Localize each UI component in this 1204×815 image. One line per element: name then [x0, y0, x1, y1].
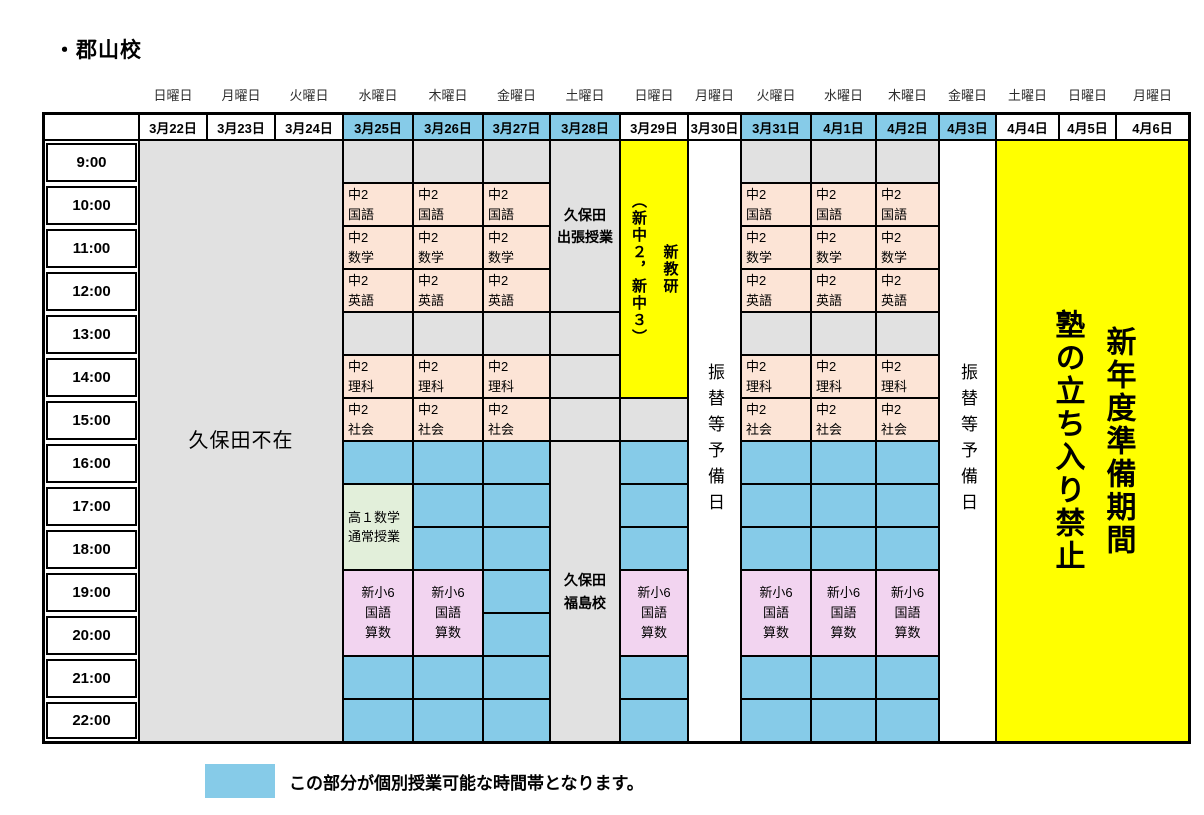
- class-block: 中2 数学: [344, 227, 412, 268]
- time-label: 19:00: [46, 573, 137, 612]
- class-block: 中2 英語: [484, 270, 549, 311]
- individual-available-slot: [621, 485, 687, 526]
- empty-slot: [551, 399, 619, 440]
- day-label: 土曜日: [997, 86, 1058, 106]
- empty-slot: [742, 141, 810, 182]
- empty-slot: [414, 141, 482, 182]
- time-label: 9:00: [46, 143, 137, 182]
- time-slot: 13:00: [45, 313, 138, 356]
- date-cell: 3月30日: [689, 115, 740, 139]
- time-slot: 15:00: [45, 399, 138, 442]
- empty-slot: [414, 313, 482, 354]
- empty-slot: [877, 313, 938, 354]
- individual-available-slot: [877, 528, 938, 569]
- empty-slot: [551, 356, 619, 397]
- day-of-week-row: 日曜日月曜日火曜日水曜日木曜日金曜日土曜日日曜日月曜日火曜日水曜日木曜日金曜日土…: [45, 86, 1188, 106]
- day-label: 金曜日: [940, 86, 995, 106]
- class-block: 新小6 国語 算数: [621, 571, 687, 655]
- empty-slot: [877, 141, 938, 182]
- date-cell: 4月1日: [812, 115, 875, 139]
- individual-available-slot: [414, 657, 482, 698]
- kubota-absent-block: 久保田不在: [140, 141, 342, 741]
- individual-available-slot: [812, 657, 875, 698]
- kubota-note-block: 久保田 福島校: [551, 442, 619, 741]
- class-block: 中2 国語: [742, 184, 810, 225]
- furikae-reserve-block: 振替等予備日: [940, 141, 995, 741]
- time-slot: 20:00: [45, 614, 138, 657]
- class-block: 中2 数学: [414, 227, 482, 268]
- individual-available-slot: [742, 485, 810, 526]
- date-cell: 4月6日: [1117, 115, 1188, 139]
- date-cell: 3月31日: [742, 115, 810, 139]
- time-slot: 18:00: [45, 528, 138, 571]
- class-block: 中2 国語: [812, 184, 875, 225]
- individual-available-slot: [484, 657, 549, 698]
- individual-available-slot: [484, 700, 549, 741]
- class-block: 中2 理科: [812, 356, 875, 397]
- day-label: 月曜日: [689, 86, 740, 106]
- individual-available-slot: [621, 442, 687, 483]
- time-label: 10:00: [46, 186, 137, 225]
- time-slot: 17:00: [45, 485, 138, 528]
- date-cell: 3月29日: [621, 115, 687, 139]
- individual-available-slot: [484, 528, 549, 569]
- individual-available-slot: [742, 528, 810, 569]
- class-block: 中2 数学: [812, 227, 875, 268]
- class-block: 中2 社会: [414, 399, 482, 440]
- class-block: 中2 国語: [877, 184, 938, 225]
- day-label: 日曜日: [1060, 86, 1115, 106]
- time-label: 22:00: [46, 702, 137, 739]
- individual-available-slot: [742, 700, 810, 741]
- individual-available-slot: [484, 614, 549, 655]
- time-slot: 16:00: [45, 442, 138, 485]
- time-label: 15:00: [46, 401, 137, 440]
- page-title: ・郡山校: [54, 34, 142, 64]
- individual-available-slot: [812, 700, 875, 741]
- class-block: 中2 英語: [812, 270, 875, 311]
- date-cell: 4月3日: [940, 115, 995, 139]
- class-block: 中2 社会: [484, 399, 549, 440]
- day-label: 金曜日: [484, 86, 549, 106]
- time-slot: 12:00: [45, 270, 138, 313]
- class-block: 高１数学 通常授業: [344, 485, 412, 569]
- individual-available-slot: [812, 442, 875, 483]
- class-block: 中2 数学: [484, 227, 549, 268]
- class-block: 中2 社会: [877, 399, 938, 440]
- individual-available-slot: [742, 442, 810, 483]
- date-cell: 3月22日: [140, 115, 206, 139]
- legend-color-swatch: [205, 764, 275, 798]
- individual-available-slot: [344, 657, 412, 698]
- class-block: 新小6 国語 算数: [414, 571, 482, 655]
- day-label: 火曜日: [742, 86, 810, 106]
- day-label: 木曜日: [877, 86, 938, 106]
- individual-available-slot: [414, 485, 482, 526]
- individual-available-slot: [344, 442, 412, 483]
- individual-available-slot: [484, 485, 549, 526]
- empty-slot: [344, 313, 412, 354]
- schedule-table: 3月22日3月23日3月24日3月25日3月26日3月27日3月28日3月29日…: [42, 112, 1191, 744]
- date-cell: 3月26日: [414, 115, 482, 139]
- legend-text: この部分が個別授業可能な時間帯となります。: [289, 769, 644, 794]
- time-label: 21:00: [46, 659, 137, 698]
- class-block: 中2 理科: [344, 356, 412, 397]
- individual-available-slot: [742, 657, 810, 698]
- class-block: 中2 理科: [414, 356, 482, 397]
- date-cell: 3月28日: [551, 115, 619, 139]
- date-cell: 3月24日: [276, 115, 342, 139]
- date-cell: 4月4日: [997, 115, 1058, 139]
- time-slot: 9:00: [45, 141, 138, 184]
- individual-available-slot: [812, 485, 875, 526]
- empty-slot: [344, 141, 412, 182]
- time-column: 9:0010:0011:0012:0013:0014:0015:0016:001…: [45, 141, 138, 741]
- date-cell: 4月5日: [1060, 115, 1115, 139]
- individual-available-slot: [877, 485, 938, 526]
- date-cell: 3月25日: [344, 115, 412, 139]
- individual-available-slot: [877, 700, 938, 741]
- time-label: 12:00: [46, 272, 137, 311]
- individual-available-slot: [621, 657, 687, 698]
- day-label: 月曜日: [208, 86, 274, 106]
- schedule-page: { "title": "・郡山校", "legend": { "text": "…: [0, 0, 1204, 815]
- class-block: 中2 理科: [742, 356, 810, 397]
- shinkyoken-exam-block: 新教研 （新中２，新中３）: [621, 141, 687, 397]
- time-slot: 19:00: [45, 571, 138, 614]
- individual-available-slot: [621, 528, 687, 569]
- day-label: 日曜日: [621, 86, 687, 106]
- individual-available-slot: [414, 442, 482, 483]
- individual-available-slot: [877, 442, 938, 483]
- empty-slot: [812, 313, 875, 354]
- day-label: 日曜日: [140, 86, 206, 106]
- class-block: 中2 英語: [414, 270, 482, 311]
- time-label: 20:00: [46, 616, 137, 655]
- day-row-spacer: [45, 86, 138, 106]
- individual-available-slot: [344, 700, 412, 741]
- individual-available-slot: [621, 700, 687, 741]
- class-block: 中2 英語: [877, 270, 938, 311]
- class-block: 中2 英語: [344, 270, 412, 311]
- time-label: 11:00: [46, 229, 137, 268]
- individual-available-slot: [877, 657, 938, 698]
- class-block: 中2 国語: [414, 184, 482, 225]
- individual-available-slot: [484, 442, 549, 483]
- day-label: 土曜日: [551, 86, 619, 106]
- class-block: 中2 国語: [344, 184, 412, 225]
- time-label: 13:00: [46, 315, 137, 354]
- class-block: 中2 理科: [484, 356, 549, 397]
- class-block: 中2 数学: [877, 227, 938, 268]
- time-label: 14:00: [46, 358, 137, 397]
- class-block: 中2 数学: [742, 227, 810, 268]
- individual-available-slot: [414, 700, 482, 741]
- class-block: 新小6 国語 算数: [742, 571, 810, 655]
- empty-slot: [621, 399, 687, 440]
- individual-available-slot: [812, 528, 875, 569]
- day-label: 火曜日: [276, 86, 342, 106]
- class-block: 中2 英語: [742, 270, 810, 311]
- time-slot: 22:00: [45, 700, 138, 741]
- day-label: 水曜日: [812, 86, 875, 106]
- class-block: 中2 社会: [742, 399, 810, 440]
- legend: この部分が個別授業可能な時間帯となります。: [205, 764, 644, 798]
- class-block: 新小6 国語 算数: [344, 571, 412, 655]
- time-slot: 11:00: [45, 227, 138, 270]
- individual-available-slot: [414, 528, 482, 569]
- time-label: 16:00: [46, 444, 137, 483]
- corner-cell: [45, 115, 138, 139]
- new-year-prep-block: 新年度準備期間 塾の立ち入り禁止: [997, 141, 1188, 741]
- day-label: 月曜日: [1117, 86, 1188, 106]
- empty-slot: [812, 141, 875, 182]
- time-slot: 21:00: [45, 657, 138, 700]
- class-block: 中2 社会: [812, 399, 875, 440]
- class-block: 中2 社会: [344, 399, 412, 440]
- time-slot: 14:00: [45, 356, 138, 399]
- date-cell: 4月2日: [877, 115, 938, 139]
- empty-slot: [742, 313, 810, 354]
- empty-slot: [484, 313, 549, 354]
- kubota-note-block: 久保田 出張授業: [551, 141, 619, 311]
- class-block: 新小6 国語 算数: [812, 571, 875, 655]
- time-slot: 10:00: [45, 184, 138, 227]
- day-label: 水曜日: [344, 86, 412, 106]
- time-label: 18:00: [46, 530, 137, 569]
- furikae-reserve-block: 振替等予備日: [689, 141, 740, 741]
- class-block: 中2 国語: [484, 184, 549, 225]
- individual-available-slot: [484, 571, 549, 612]
- time-label: 17:00: [46, 487, 137, 526]
- empty-slot: [484, 141, 549, 182]
- empty-slot: [551, 313, 619, 354]
- date-cell: 3月27日: [484, 115, 549, 139]
- class-block: 新小6 国語 算数: [877, 571, 938, 655]
- day-label: 木曜日: [414, 86, 482, 106]
- date-cell: 3月23日: [208, 115, 274, 139]
- class-block: 中2 理科: [877, 356, 938, 397]
